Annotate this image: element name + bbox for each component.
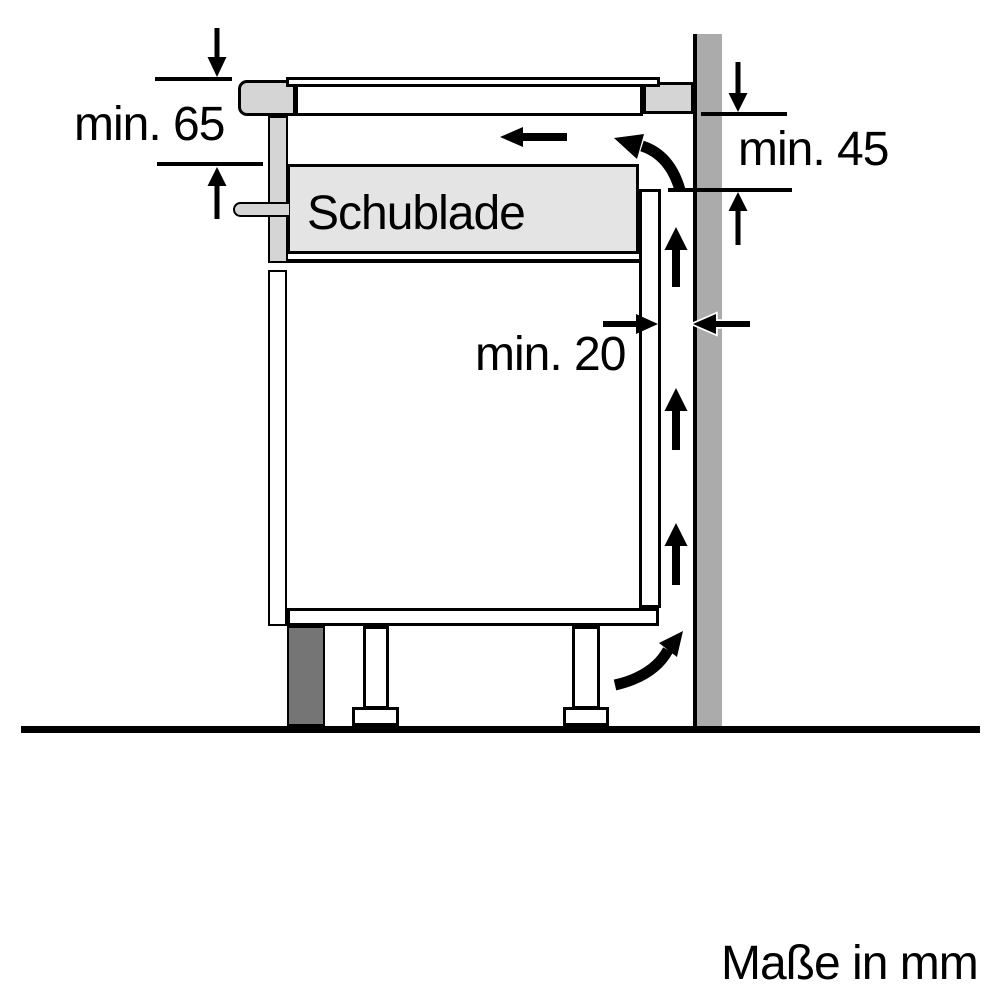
dim-line-65-top xyxy=(155,77,232,81)
front-leg-foot xyxy=(352,707,399,726)
airflow-up-arrow-1 xyxy=(665,227,688,287)
drawer-support-line xyxy=(287,259,639,263)
dim-label-20: min. 20 xyxy=(475,331,625,379)
airflow-up-arrow-2 xyxy=(665,388,688,450)
dim-label-45: min. 45 xyxy=(738,126,888,174)
installation-diagram: Schublade xyxy=(0,0,1000,1000)
cabinet-back-panel xyxy=(639,189,661,608)
front-leg-shaft xyxy=(363,626,389,709)
airflow-curved-arrow-bottom xyxy=(615,631,683,685)
floor-line xyxy=(21,726,980,733)
plinth-panel xyxy=(287,626,325,726)
dim-arrow-up-65 xyxy=(208,167,227,219)
fixing-bracket xyxy=(233,202,289,217)
rear-leg-foot xyxy=(563,707,609,726)
dim-line-45-bottom xyxy=(668,188,792,192)
worktop-section xyxy=(295,84,643,116)
hob-glass-top xyxy=(286,77,660,87)
cabinet-bottom-panel xyxy=(287,608,659,626)
rear-leg-shaft xyxy=(572,626,600,709)
hob-housing xyxy=(268,116,288,263)
drawer-label: Schublade xyxy=(307,190,525,238)
wall-edge-line xyxy=(693,34,697,726)
units-note: Maße in mm xyxy=(721,940,978,988)
dim-label-65: min. 65 xyxy=(74,101,224,149)
airflow-left-arrow xyxy=(500,127,567,147)
cabinet-left-wall xyxy=(268,270,287,626)
dim-line-45-top xyxy=(701,112,787,116)
dim-arrow-up-45 xyxy=(729,192,748,245)
dim-arrow-down-45 xyxy=(729,62,748,112)
dim-arrow-down-65 xyxy=(208,28,227,77)
airflow-up-arrow-3 xyxy=(665,523,688,585)
wall xyxy=(697,34,722,726)
dim-line-65-bottom xyxy=(157,162,263,166)
